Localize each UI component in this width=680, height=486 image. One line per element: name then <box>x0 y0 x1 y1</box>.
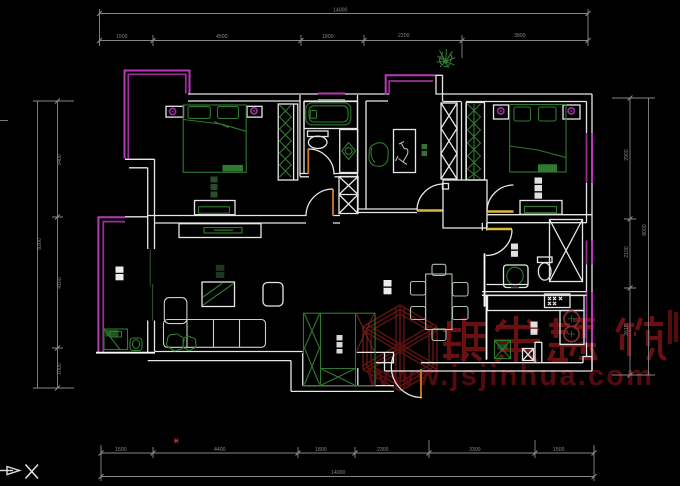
svg-text:1500: 1500 <box>116 34 128 40</box>
svg-text:8200: 8200 <box>37 238 43 250</box>
svg-text:14000: 14000 <box>333 8 348 14</box>
svg-text:3400: 3400 <box>57 154 63 166</box>
svg-text:8000: 8000 <box>642 224 648 236</box>
svg-text:1000: 1000 <box>57 363 63 375</box>
svg-text:4500: 4500 <box>216 34 228 40</box>
svg-text:1800: 1800 <box>322 34 334 40</box>
svg-text:2300: 2300 <box>377 447 389 453</box>
svg-text:1800: 1800 <box>315 447 327 453</box>
svg-text:3300: 3300 <box>469 447 481 453</box>
svg-text:www.jsjinhua.com: www.jsjinhua.com <box>366 360 652 392</box>
svg-text:1500: 1500 <box>115 447 127 453</box>
svg-text:3800: 3800 <box>514 33 526 39</box>
svg-text:2610: 2610 <box>624 324 630 336</box>
svg-text:4100: 4100 <box>57 277 63 289</box>
svg-text:1500: 1500 <box>553 447 565 453</box>
svg-text:2200: 2200 <box>398 33 410 39</box>
svg-text:14000: 14000 <box>331 470 346 476</box>
svg-text:4400: 4400 <box>214 447 226 453</box>
svg-text:2100: 2100 <box>624 246 630 258</box>
svg-text:2900: 2900 <box>624 149 630 161</box>
